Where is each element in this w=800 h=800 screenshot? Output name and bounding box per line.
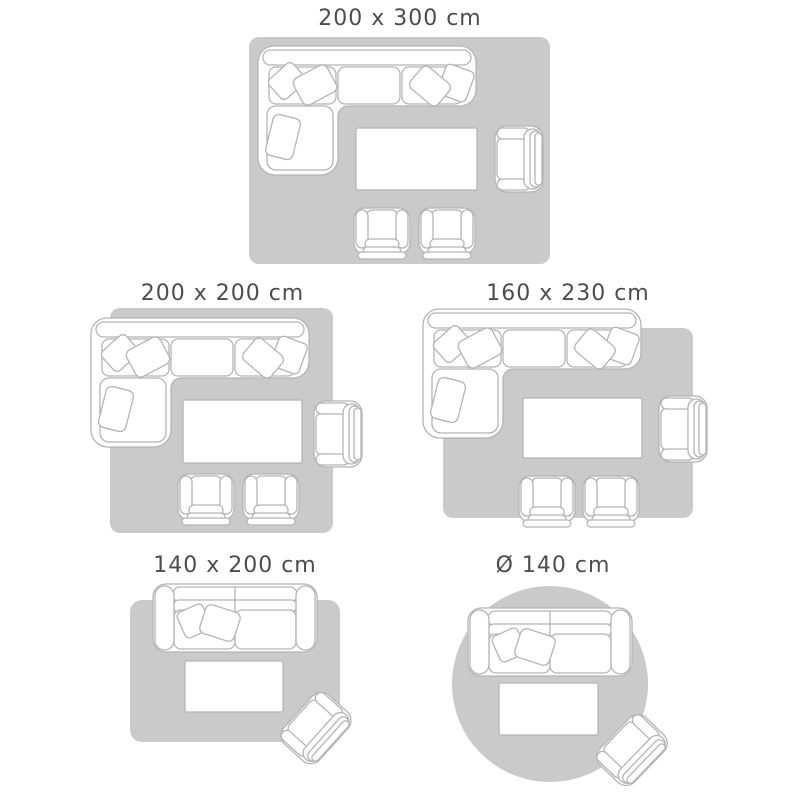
room-illustration-140x200 <box>80 572 380 800</box>
coffee-table-icon <box>185 661 283 712</box>
armchair-icon <box>659 396 707 462</box>
armchair-icon <box>495 126 543 192</box>
room-illustration-d140 <box>430 572 730 800</box>
size-diagram-200x200 <box>60 300 385 545</box>
size-diagram-140x200 <box>80 572 380 800</box>
room-illustration-200x300 <box>230 30 570 270</box>
room-illustration-200x200 <box>60 300 385 545</box>
size-diagram-200x300 <box>230 30 570 270</box>
club-chair-icon <box>178 474 234 525</box>
size-diagram-160x230 <box>400 300 720 545</box>
club-chair-icon <box>419 208 475 259</box>
club-chair-icon <box>583 476 639 527</box>
rug-size-guide: { "title": "Rug size guide", "colors": {… <box>0 0 800 800</box>
club-chair-icon <box>243 474 299 525</box>
room-illustration-160x230 <box>400 300 720 545</box>
two-seat-sofa-icon <box>153 584 317 652</box>
coffee-table-icon <box>499 683 598 735</box>
coffee-table-icon <box>356 128 477 190</box>
club-chair-icon <box>354 208 410 259</box>
two-seat-sofa-icon <box>468 608 632 676</box>
size-label-200x300: 200 x 300 cm <box>230 6 570 32</box>
coffee-table-icon <box>183 400 302 463</box>
club-chair-icon <box>519 476 575 527</box>
size-diagram-d140 <box>430 572 730 800</box>
armchair-icon <box>314 401 362 467</box>
coffee-table-icon <box>523 398 642 458</box>
